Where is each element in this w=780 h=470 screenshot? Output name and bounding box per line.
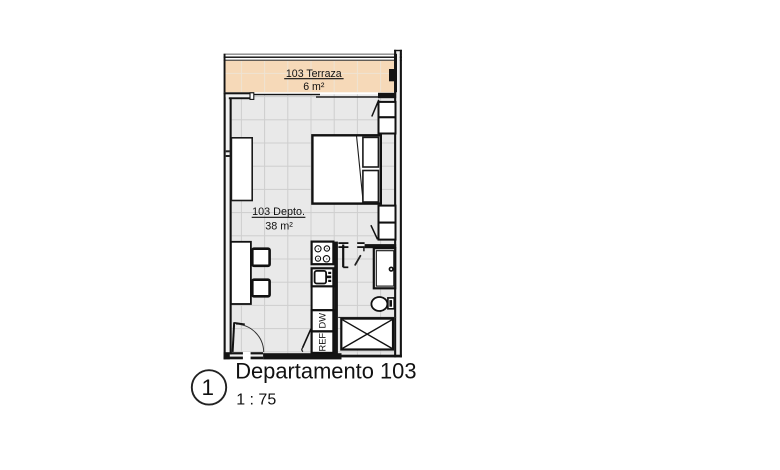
svg-text:1 : 75: 1 : 75: [236, 391, 276, 408]
svg-text:Departamento 103: Departamento 103: [235, 359, 416, 384]
svg-text:DW: DW: [318, 313, 328, 329]
svg-text:103 Depto.: 103 Depto.: [252, 206, 305, 218]
svg-text:103 Terraza: 103 Terraza: [286, 68, 342, 80]
svg-text:6 m²: 6 m²: [303, 81, 325, 93]
svg-text:38 m²: 38 m²: [265, 220, 293, 232]
svg-text:1: 1: [202, 375, 215, 400]
svg-text:REF: REF: [318, 333, 328, 352]
